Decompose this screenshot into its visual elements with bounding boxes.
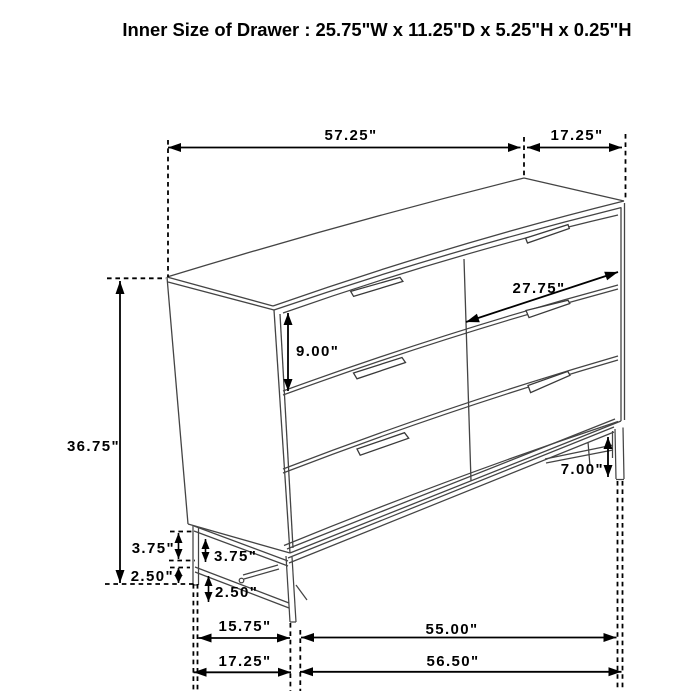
svg-text:56.50": 56.50" xyxy=(426,653,479,670)
svg-text:57.25": 57.25" xyxy=(324,127,377,144)
svg-text:36.75": 36.75" xyxy=(67,438,120,455)
svg-text:2.50": 2.50" xyxy=(215,584,258,601)
svg-text:9.00": 9.00" xyxy=(296,343,339,360)
svg-text:55.00": 55.00" xyxy=(425,621,478,638)
svg-text:2.50": 2.50" xyxy=(131,568,174,585)
svg-text:Inner Size of Drawer : 25.75"W: Inner Size of Drawer : 25.75"W x 11.25"D… xyxy=(122,19,631,40)
svg-text:17.25": 17.25" xyxy=(550,127,603,144)
svg-text:7.00": 7.00" xyxy=(561,461,604,478)
svg-text:3.75": 3.75" xyxy=(214,548,257,565)
svg-text:27.75": 27.75" xyxy=(512,280,565,297)
svg-text:17.25": 17.25" xyxy=(218,653,271,670)
svg-text:3.75": 3.75" xyxy=(132,540,175,557)
svg-text:15.75": 15.75" xyxy=(218,618,271,635)
